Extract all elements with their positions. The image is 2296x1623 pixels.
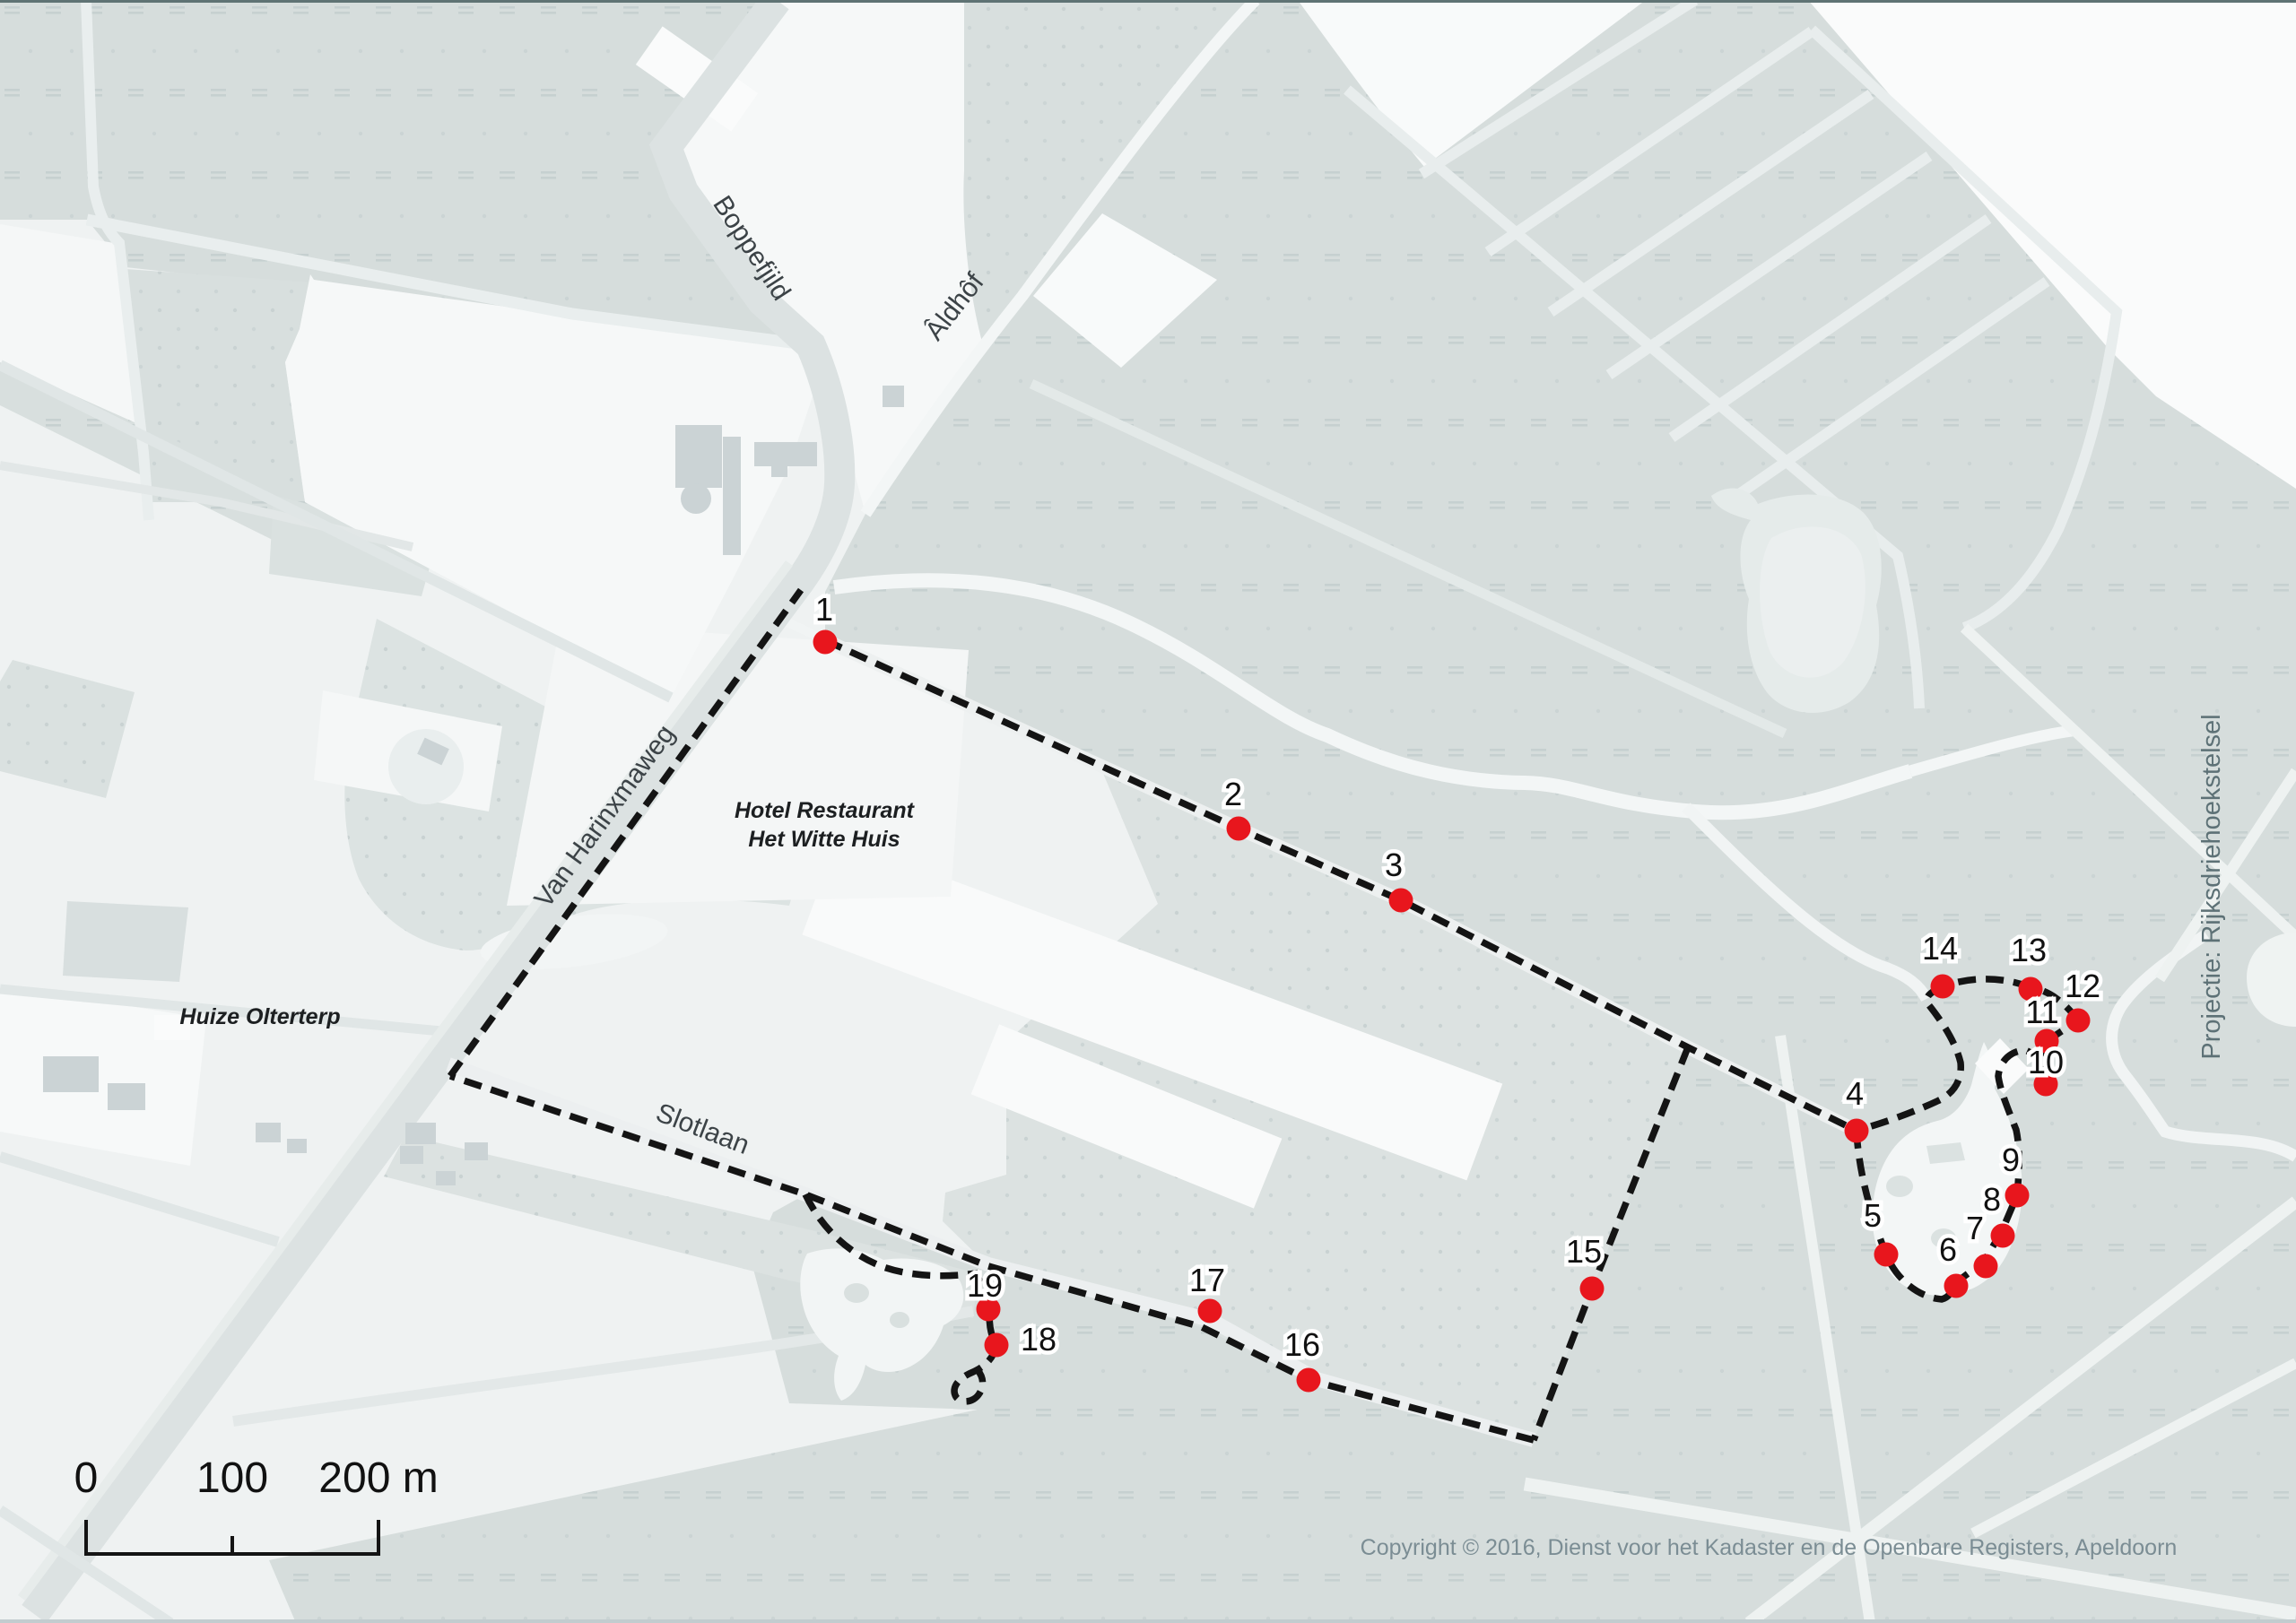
svg-text:6: 6 [1939, 1231, 1957, 1268]
svg-text:Het Witte Huis: Het Witte Huis [748, 827, 900, 852]
svg-text:7: 7 [1966, 1210, 1984, 1246]
svg-text:4: 4 [1846, 1075, 1864, 1112]
svg-text:3: 3 [1385, 846, 1403, 883]
svg-text:8: 8 [1983, 1181, 2001, 1218]
svg-text:15: 15 [1566, 1233, 1602, 1270]
svg-text:10: 10 [2028, 1044, 2064, 1081]
svg-text:17: 17 [1189, 1262, 1225, 1298]
svg-text:100: 100 [196, 1454, 268, 1502]
svg-text:16: 16 [1284, 1326, 1320, 1363]
svg-text:12: 12 [2065, 968, 2100, 1004]
svg-text:1: 1 [815, 591, 833, 628]
svg-text:18: 18 [1021, 1321, 1057, 1358]
svg-text:Copyright © 2016, Dienst voor: Copyright © 2016, Dienst voor het Kadast… [1361, 1535, 2178, 1560]
svg-text:14: 14 [1922, 930, 1958, 967]
svg-text:Huize Olterterp: Huize Olterterp [179, 1004, 340, 1029]
svg-text:9: 9 [2002, 1141, 2020, 1178]
svg-text:2: 2 [1224, 776, 1242, 812]
svg-text:19: 19 [967, 1267, 1003, 1304]
svg-text:0: 0 [74, 1454, 99, 1502]
svg-text:Projectie: Rijksdriehoekstelse: Projectie: Rijksdriehoekstelsel [2197, 714, 2226, 1059]
svg-text:11: 11 [2025, 994, 2058, 1030]
svg-text:200 m: 200 m [318, 1454, 438, 1502]
svg-text:13: 13 [2011, 932, 2047, 968]
svg-text:5: 5 [1864, 1197, 1882, 1234]
svg-text:Hotel Restaurant: Hotel Restaurant [735, 798, 916, 823]
